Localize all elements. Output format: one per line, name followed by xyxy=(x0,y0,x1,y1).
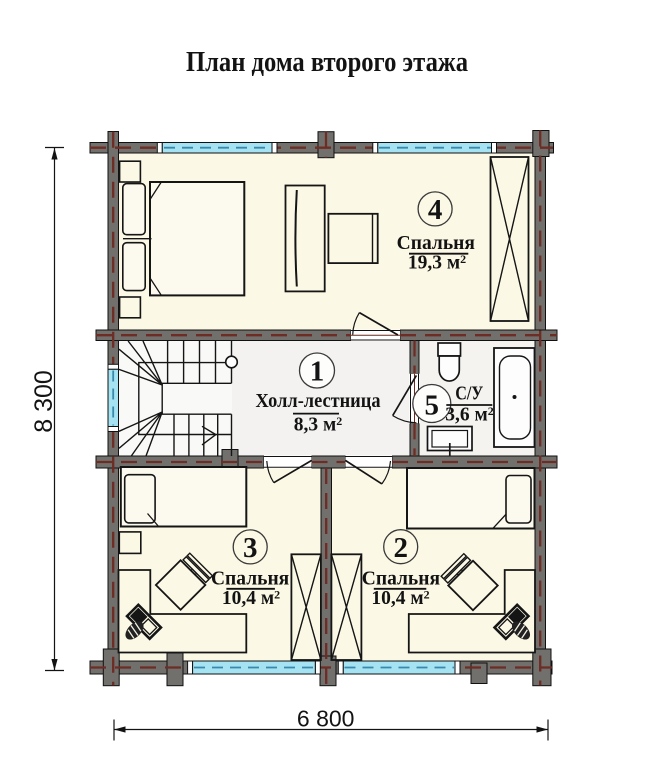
svg-text:1: 1 xyxy=(310,356,325,388)
svg-text:План дома второго этажа: План дома второго этажа xyxy=(186,47,468,78)
svg-text:10,4 м2: 10,4 м2 xyxy=(222,588,280,610)
svg-text:Холл-лестница: Холл-лестница xyxy=(256,391,381,412)
svg-text:Спальня: Спальня xyxy=(362,569,441,590)
svg-text:3,6 м2: 3,6 м2 xyxy=(445,404,494,426)
svg-text:5: 5 xyxy=(425,390,440,422)
svg-text:6 800: 6 800 xyxy=(297,706,355,732)
svg-text:4: 4 xyxy=(428,194,443,226)
svg-text:С/У: С/У xyxy=(455,384,483,405)
svg-text:3: 3 xyxy=(243,532,258,564)
svg-text:2: 2 xyxy=(393,532,408,564)
svg-text:8,3 м2: 8,3 м2 xyxy=(294,414,343,436)
svg-text:Спальня: Спальня xyxy=(211,569,290,590)
svg-text:8 300: 8 300 xyxy=(30,370,58,433)
svg-text:Спальня: Спальня xyxy=(397,233,476,254)
svg-text:19,3 м2: 19,3 м2 xyxy=(408,252,466,274)
svg-text:10,4 м2: 10,4 м2 xyxy=(371,588,429,610)
